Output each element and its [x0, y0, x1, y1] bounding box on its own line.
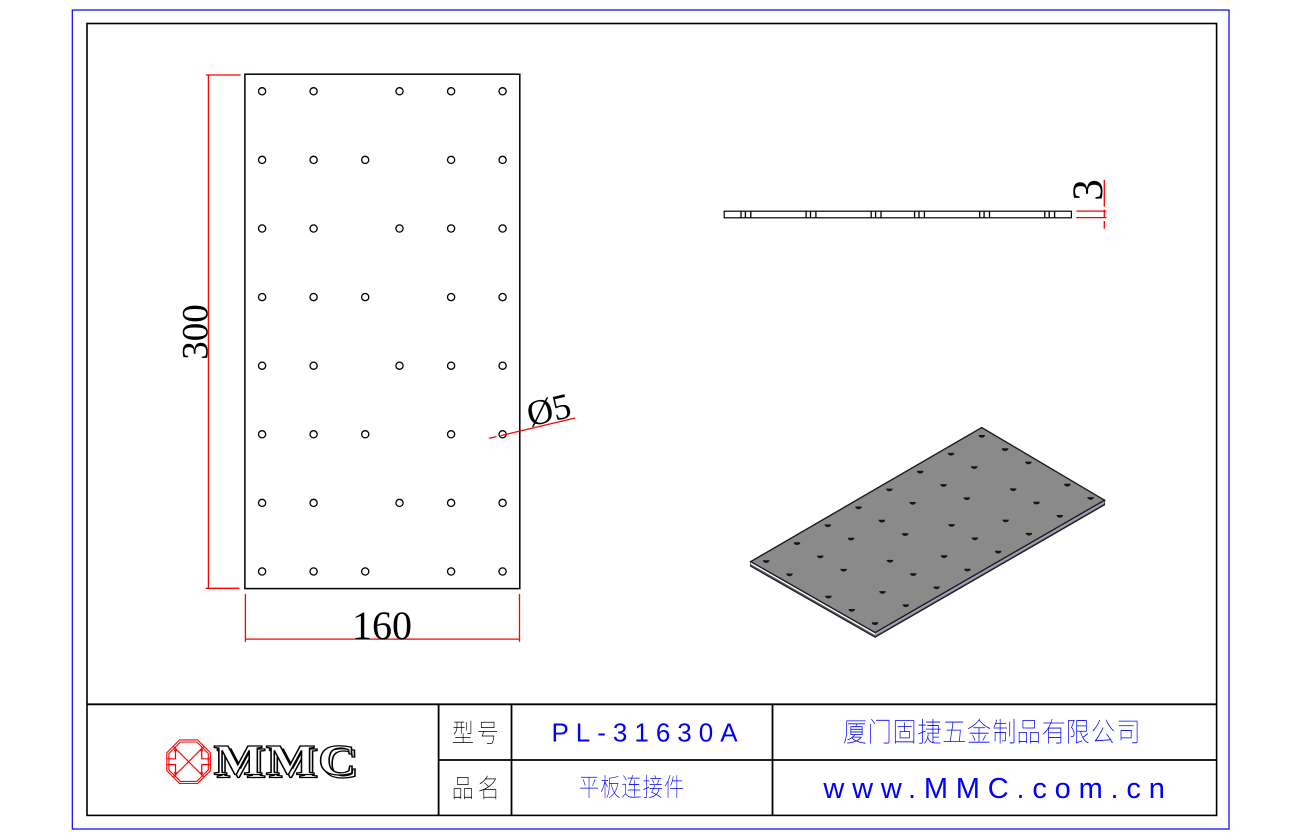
svg-text:300: 300	[176, 304, 217, 360]
svg-text:160: 160	[352, 603, 412, 648]
svg-text:www.MMC.com.cn: www.MMC.com.cn	[822, 773, 1172, 805]
svg-text:Ø5: Ø5	[523, 385, 575, 434]
svg-text:PL-31630A: PL-31630A	[551, 718, 744, 748]
svg-text:MMC: MMC	[214, 738, 359, 785]
svg-text:3: 3	[1065, 179, 1112, 201]
